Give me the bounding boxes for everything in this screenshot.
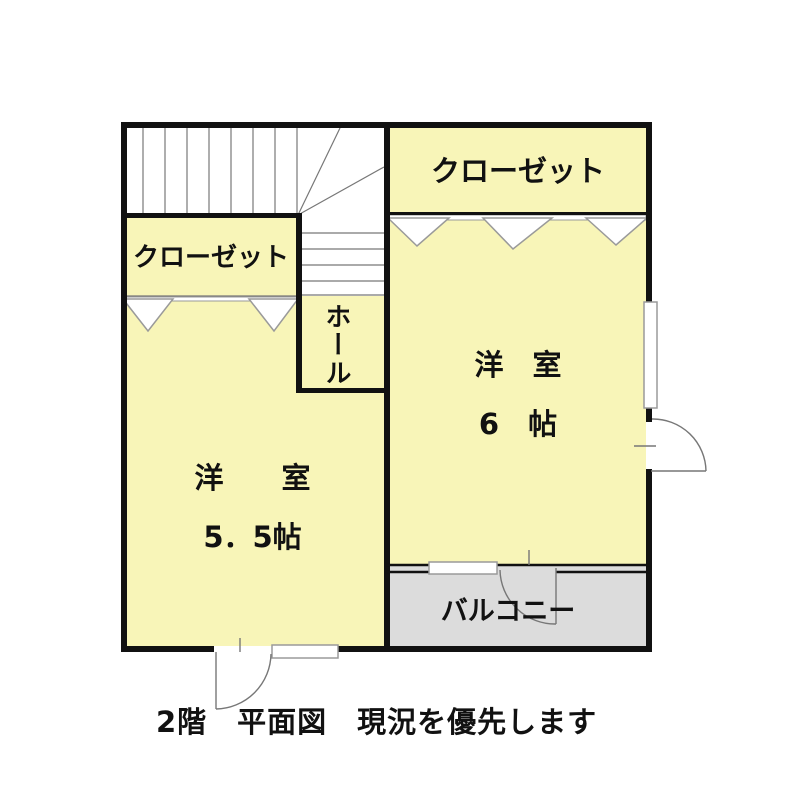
wall-right-lower — [646, 469, 652, 652]
wall-left — [121, 122, 127, 652]
bedroom-right-size: 6 帖 — [390, 408, 646, 441]
caption: 2階 平面図 現況を優先します — [156, 706, 597, 739]
bedroom-right-label: 洋 室 — [390, 349, 646, 382]
floorplan-canvas: クローゼット クローゼット ホール 洋 室 6 帖 洋 室 5．5帖 バルコニー… — [0, 0, 800, 786]
bedroom-right-area — [390, 128, 646, 566]
closet-right-label: クローゼット — [390, 155, 646, 188]
stair-treads-upper — [143, 128, 297, 214]
stair-treads-lower — [302, 233, 384, 295]
wall-hall-left — [296, 213, 302, 393]
balcony-label: バルコニー — [382, 596, 634, 627]
bedroom-left-label: 洋 室 — [121, 462, 384, 495]
wall-stairs-bottom — [121, 213, 301, 218]
wall-right-upper — [646, 122, 652, 303]
floorplan-drawing — [0, 0, 800, 786]
wall-bottom-left — [121, 646, 214, 652]
bedroom-left-size: 5．5帖 — [121, 521, 384, 554]
entry-door — [216, 638, 338, 709]
balcony-sliding-panel — [429, 562, 497, 574]
hall-label: ホール — [320, 303, 350, 395]
stair-winder-fan — [298, 128, 384, 215]
wall-right-stub — [646, 408, 652, 422]
wall-closet-right-front — [390, 212, 646, 215]
closet-left-label: クローゼット — [126, 244, 296, 274]
entry-door-panel — [272, 645, 338, 658]
